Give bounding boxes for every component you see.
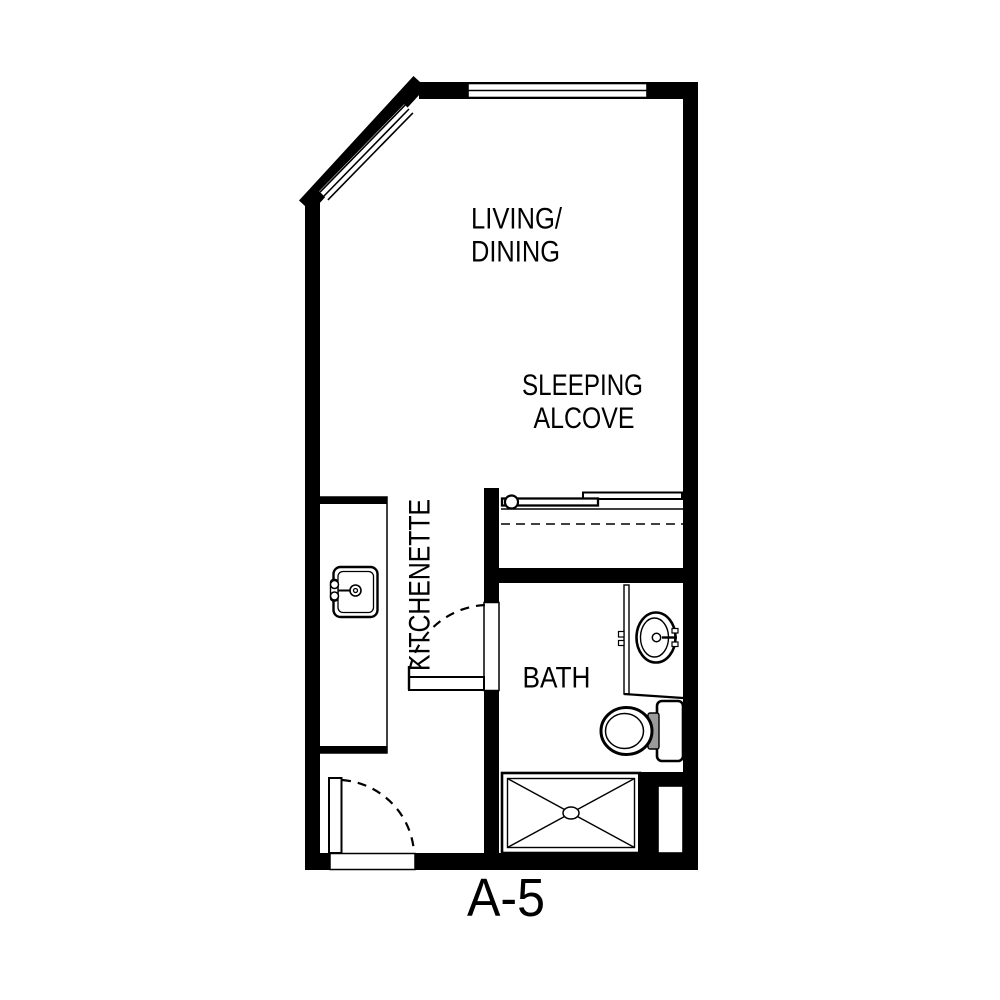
vanity-faucet-handle-top [672,629,678,634]
toilet-tank [657,701,683,761]
top-window-icon [468,84,647,98]
vanity-sink-drain [652,633,660,641]
bath-door-leaf [409,677,484,690]
shower-icon [502,773,640,853]
wall-bath-upper [484,488,499,603]
bath-niche [658,786,683,853]
wall-left [305,198,320,870]
bath-label: BATH [523,662,591,695]
closet-door-pull [505,496,518,509]
bath-door-opening [484,603,499,691]
living-dining-label-line2: DINING [471,236,560,269]
wall-closet-bath-divider [484,568,690,583]
counter-outline [318,497,387,753]
sleeping-alcove-label-line1: SLEEPING [522,369,643,402]
floor-plan-drawing: LIVING/ DINING SLEEPING ALCOVE KITCHENET… [0,0,1000,1000]
living-dining-label-line1: LIVING/ [471,203,563,236]
floor-plan-page: LIVING/ DINING SLEEPING ALCOVE KITCHENET… [0,0,1000,1000]
entry-door-opening [330,854,415,870]
counter-bottom-cap [318,746,387,753]
shower-drain [563,807,579,819]
wall-bath-lower [484,690,499,858]
counter-top-cap [318,497,387,504]
toilet-bowl-outer [601,708,652,755]
kitchen-faucet-handle-bottom [331,592,339,600]
kitchenette-label: KITCHENETTE [404,499,437,671]
sleeping-alcove-label-line2: ALCOVE [534,402,635,435]
kitchen-faucet-head [350,585,361,596]
wall-right [683,82,698,870]
vanity-knob-bottom [619,641,625,646]
plan-background [0,0,1000,1000]
kitchen-faucet-handle-top [331,581,339,589]
unit-title: A-5 [467,868,545,928]
vanity-faucet-handle-bottom [672,642,678,647]
vanity-knob-top [619,632,625,638]
kitchen-sink-icon [331,567,378,617]
vanity-edge [624,585,629,694]
kitchenette-counter [318,497,387,753]
entry-door-leaf [329,778,342,853]
